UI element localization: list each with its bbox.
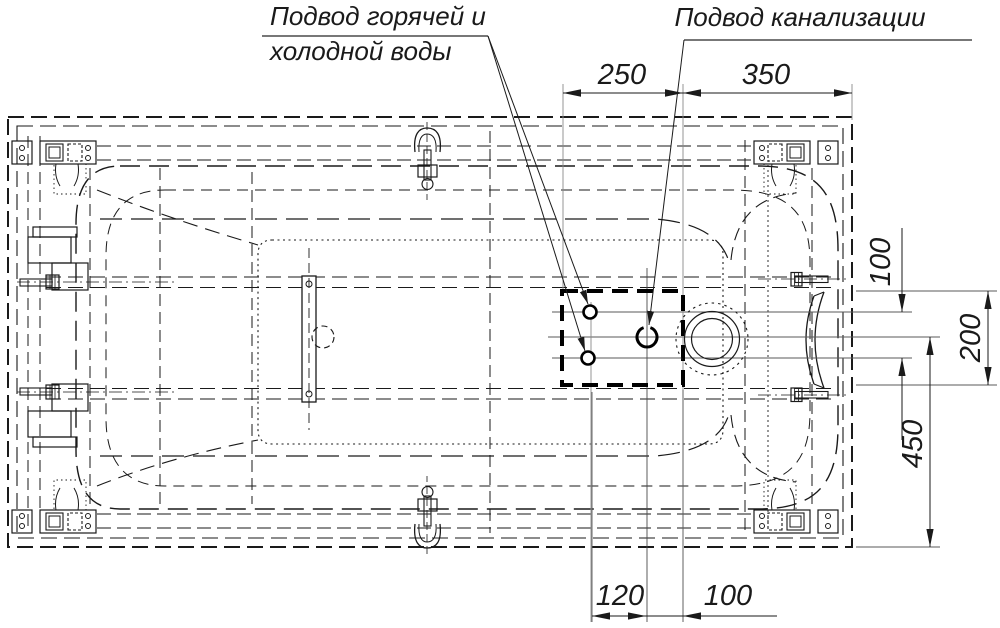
water-supply-label-line1: Подвод горячей и: [270, 1, 486, 31]
drawing-canvas: Подвод горячей и холодной воды Подвод ка…: [0, 0, 1000, 628]
dim-250-text: 250: [597, 59, 646, 91]
rim-clamp-top: [415, 122, 441, 200]
rim-clamp-bottom: [415, 476, 441, 554]
sewage-leader: [649, 40, 684, 325]
support-frame: [46, 131, 838, 533]
hot-water-connection: [584, 306, 597, 319]
dim-350-text: 350: [742, 59, 790, 91]
dimension-200: 200: [955, 291, 992, 385]
corner-bracket-top-right: [754, 141, 838, 194]
fitting-centerlines: [548, 84, 940, 622]
water-leader-2: [488, 36, 585, 351]
cold-water-connection: [582, 352, 595, 365]
center-plate: [302, 248, 334, 430]
water-leader-1: [488, 36, 588, 304]
dim-100-right-text: 100: [865, 238, 897, 286]
water-supply-label-line2: холодной воды: [268, 36, 452, 66]
dimension-250: 250: [563, 59, 683, 97]
tub-floor: [258, 240, 723, 444]
dim-450-text: 450: [897, 420, 929, 468]
dim-100-bottom-text: 100: [704, 580, 752, 612]
connection-zone-box: [562, 291, 683, 385]
dim-120-text: 120: [596, 580, 644, 612]
dimension-100-right: 100: [865, 228, 906, 440]
dimension-100-bottom: 100: [683, 580, 752, 620]
left-bracket-upper: [17, 227, 178, 290]
sewage-label: Подвод канализации: [674, 2, 925, 32]
corner-bracket-bottom-right: [754, 480, 838, 533]
bathtub-installation-drawing: Подвод горячей и холодной воды Подвод ка…: [0, 0, 1000, 628]
drain-assembly: [676, 303, 748, 375]
right-bolt-lower: [758, 388, 846, 402]
tub-outline: [76, 166, 838, 509]
dim-200-text: 200: [955, 314, 987, 363]
corner-bracket-bottom-left: [12, 480, 96, 533]
left-bracket-lower: [17, 384, 178, 447]
apron-border: [8, 117, 852, 547]
dimension-350: 350: [683, 59, 852, 97]
right-bolt-upper: [758, 273, 846, 287]
